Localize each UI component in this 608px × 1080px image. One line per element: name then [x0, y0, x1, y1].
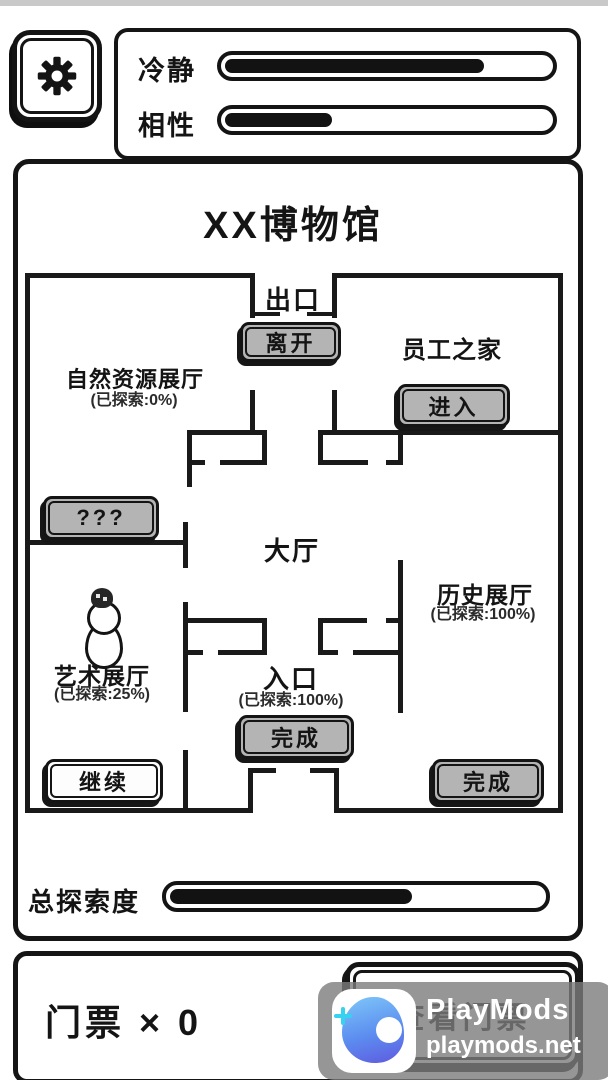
wall — [353, 650, 403, 655]
room-label-staff-home: 员工之家 — [402, 330, 502, 365]
wall — [187, 618, 267, 623]
enter-button-label: 进入 — [402, 389, 505, 422]
total-exploration-bar-fill — [170, 889, 412, 904]
player-character — [84, 588, 120, 664]
status-panel: 冷静 相性 — [114, 28, 581, 160]
wall — [318, 430, 563, 435]
affinity-label: 相性 — [138, 104, 196, 143]
finish-entrance-button[interactable]: 完成 — [238, 715, 354, 759]
wall — [334, 808, 563, 813]
room-label-hall: 大厅 — [264, 531, 320, 568]
room-explored-entrance: (已探索:100%) — [239, 686, 344, 710]
wall — [248, 768, 276, 773]
wall — [250, 390, 255, 434]
playmods-brand-text: PlayMods — [426, 994, 569, 1027]
settings-button[interactable] — [12, 30, 102, 122]
game-screen: 冷静 相性 XX博物馆 — [0, 0, 608, 1080]
playmods-watermark[interactable]: PlayMods playmods.net — [318, 982, 608, 1080]
wall — [187, 430, 192, 487]
wall — [183, 650, 203, 655]
unknown-room-button[interactable]: ??? — [43, 496, 159, 540]
museum-title: XX博物馆 — [203, 194, 383, 249]
finish-entrance-button-label: 完成 — [243, 720, 349, 754]
wall — [310, 768, 339, 773]
wall — [218, 650, 267, 655]
wall — [332, 390, 337, 434]
enter-button[interactable]: 进入 — [397, 384, 510, 427]
top-edge-strip — [0, 0, 608, 6]
wall — [187, 430, 267, 435]
room-explored-natural: (已探索:0%) — [90, 386, 177, 410]
wall — [318, 650, 338, 655]
room-explored-history: (已探索:100%) — [431, 600, 536, 624]
playmods-domain-text: playmods.net — [426, 1032, 581, 1060]
finish-history-button-label: 完成 — [437, 764, 539, 798]
wall — [334, 768, 339, 810]
total-exploration-bar — [162, 881, 550, 912]
wall — [386, 618, 403, 623]
wall — [386, 460, 403, 465]
room-explored-art: (已探索:25%) — [54, 680, 150, 704]
logo-mouth-shape — [376, 1017, 402, 1043]
wall — [318, 460, 368, 465]
leave-button[interactable]: 离开 — [240, 322, 341, 362]
gear-icon — [35, 54, 79, 98]
settings-button-ring — [20, 38, 94, 114]
character-hat — [91, 588, 113, 608]
wall — [398, 560, 403, 713]
unknown-room-button-label: ??? — [48, 501, 154, 535]
wall — [25, 808, 253, 813]
wall — [183, 750, 188, 810]
wall — [334, 273, 563, 278]
wall — [183, 522, 188, 568]
wall — [220, 460, 267, 465]
calm-label: 冷静 — [138, 49, 196, 88]
total-exploration-label: 总探索度 — [28, 882, 140, 919]
wall — [187, 460, 205, 465]
room-label-exit: 出口 — [265, 280, 321, 317]
wall — [558, 273, 563, 813]
affinity-bar — [217, 105, 557, 135]
wall — [25, 540, 188, 545]
calm-bar-fill — [225, 59, 484, 73]
ticket-count: 门票 × 0 — [45, 994, 202, 1046]
wall — [318, 618, 367, 623]
sparkle-icon — [334, 1007, 352, 1025]
affinity-bar-fill — [225, 113, 332, 127]
continue-button[interactable]: 继续 — [45, 759, 163, 803]
leave-button-label: 离开 — [245, 327, 336, 357]
calm-bar — [217, 51, 557, 81]
continue-button-label: 继续 — [50, 764, 158, 798]
wall — [25, 273, 253, 278]
wall — [248, 768, 253, 810]
playmods-logo-icon — [332, 989, 416, 1073]
finish-history-button[interactable]: 完成 — [432, 759, 544, 803]
